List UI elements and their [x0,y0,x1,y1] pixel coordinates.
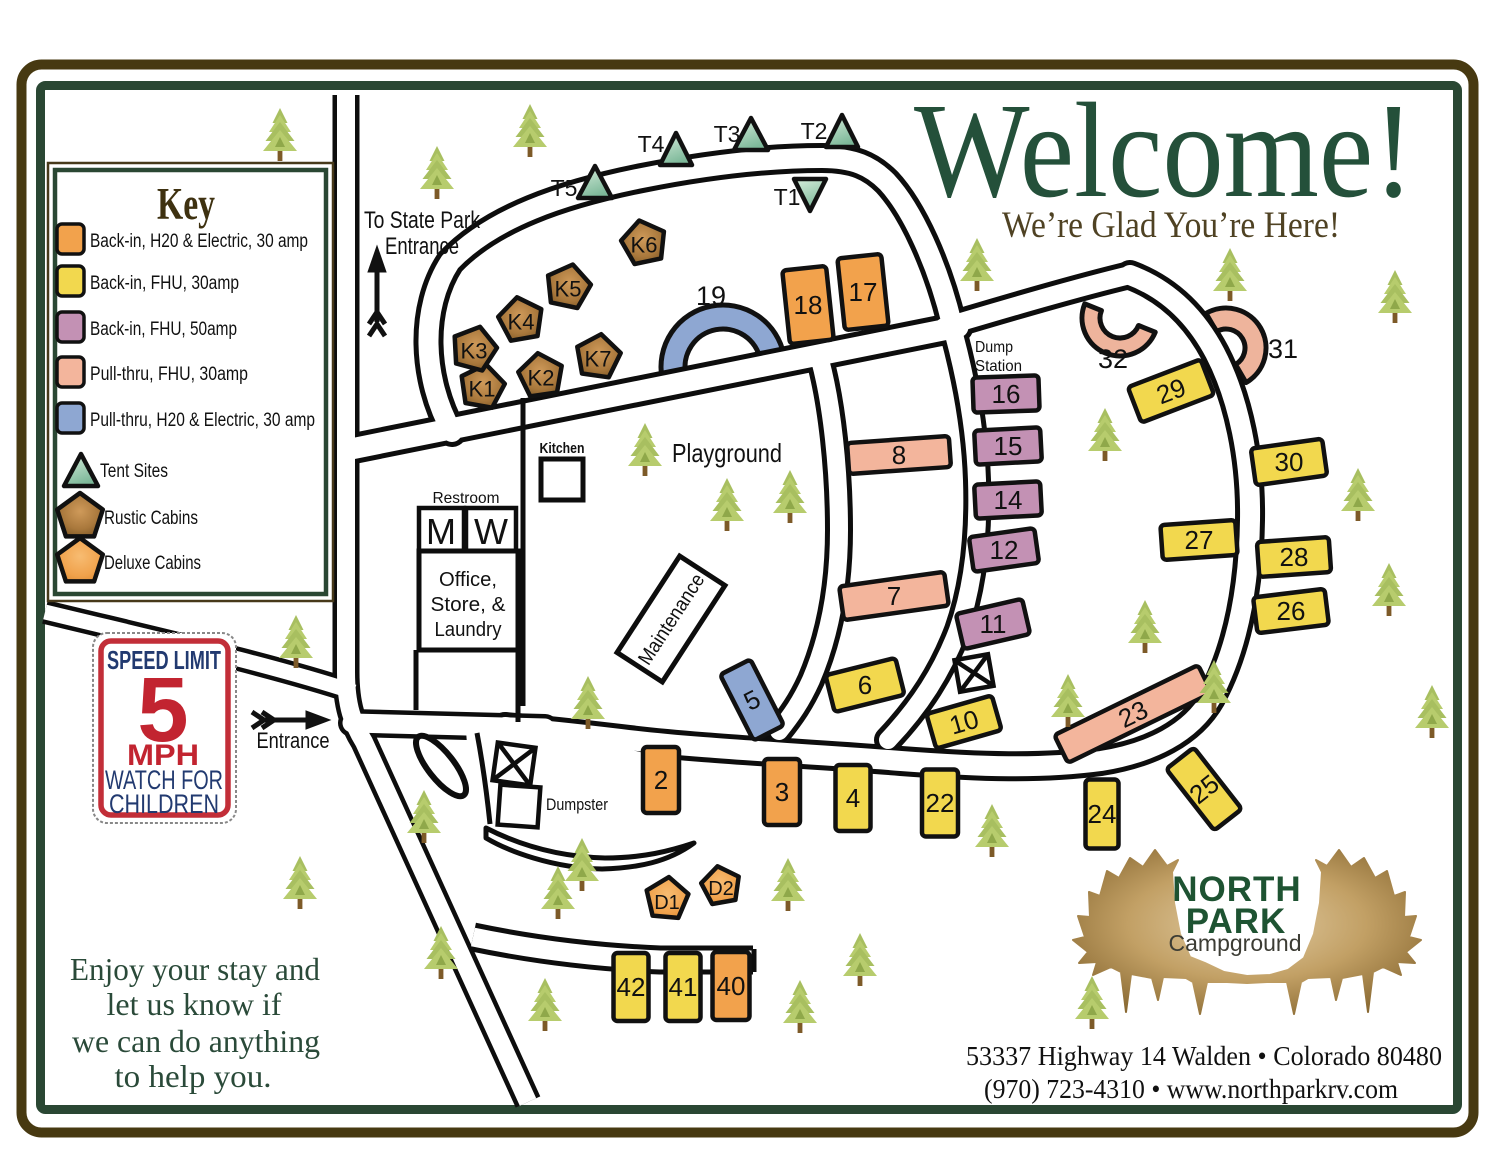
svg-text:Kitchen: Kitchen [540,440,585,457]
svg-text:30: 30 [1275,447,1304,477]
svg-text:15: 15 [994,431,1023,461]
svg-text:14: 14 [994,485,1023,515]
svg-text:6: 6 [858,670,872,700]
svg-text:Office,: Office, [439,569,497,591]
svg-text:Laundry: Laundry [435,619,502,641]
svg-text:4: 4 [846,783,860,813]
svg-text:T1: T1 [774,184,801,210]
svg-text:T2: T2 [801,118,828,144]
svg-text:7: 7 [887,581,901,611]
svg-text:K5: K5 [555,277,582,302]
svg-text:Tent Sites: Tent Sites [100,461,168,482]
svg-text:28: 28 [1280,542,1309,572]
svg-text:Restroom: Restroom [433,490,500,507]
svg-text:T5: T5 [551,175,578,201]
svg-text:26: 26 [1277,596,1306,626]
svg-text:Dump: Dump [975,339,1013,356]
svg-text:3: 3 [775,777,789,807]
svg-text:41: 41 [669,972,698,1002]
svg-text:D2: D2 [708,878,734,900]
svg-text:K3: K3 [461,339,488,364]
svg-text:let us know if: let us know if [107,986,282,1022]
svg-text:22: 22 [926,788,955,818]
svg-text:53337 Highway 14 Walden • Colo: 53337 Highway 14 Walden • Colorado 80480 [966,1041,1442,1071]
svg-text:17: 17 [849,277,878,307]
svg-text:Rustic Cabins: Rustic Cabins [104,508,198,529]
svg-text:Entrance: Entrance [385,233,459,260]
svg-text:Campground: Campground [1169,930,1302,956]
svg-text:K6: K6 [631,233,658,258]
svg-text:Key: Key [157,179,215,229]
svg-text:Enjoy your stay and: Enjoy your stay and [70,951,320,987]
svg-text:T4: T4 [638,131,665,157]
svg-text:24: 24 [1088,799,1117,829]
svg-text:K7: K7 [585,347,612,372]
svg-text:Welcome!: Welcome! [914,76,1414,226]
svg-text:18: 18 [794,290,823,320]
svg-text:2: 2 [654,765,668,795]
svg-text:W: W [474,511,508,552]
svg-text:42: 42 [617,972,646,1002]
svg-text:12: 12 [990,535,1019,565]
svg-text:Pull-thru, H20 & Electric, 30: Pull-thru, H20 & Electric, 30 amp [90,410,315,431]
svg-text:Back-in, FHU, 50amp: Back-in, FHU, 50amp [90,319,237,340]
svg-text:Back-in, H20 & Electric, 30 am: Back-in, H20 & Electric, 30 amp [90,231,308,252]
svg-text:Deluxe Cabins: Deluxe Cabins [104,553,201,574]
svg-text:To State Park: To State Park [364,207,481,234]
svg-text:Pull-thru, FHU, 30amp: Pull-thru, FHU, 30amp [90,364,248,385]
svg-text:K2: K2 [528,366,555,391]
svg-text:27: 27 [1185,525,1214,555]
svg-text:K4: K4 [508,310,535,335]
svg-text:to help you.: to help you. [115,1058,272,1094]
svg-text:Back-in, FHU, 30amp: Back-in, FHU, 30amp [90,273,239,294]
svg-text:Store, &: Store, & [431,594,507,616]
svg-text:11: 11 [980,609,1007,639]
svg-text:T3: T3 [714,121,741,147]
svg-text:Dumpster: Dumpster [546,795,608,814]
svg-text:K1: K1 [469,377,496,402]
svg-text:M: M [426,511,456,552]
svg-text:Playground: Playground [672,438,782,468]
svg-text:D1: D1 [654,892,680,914]
svg-text:Station: Station [975,358,1022,375]
svg-text:8: 8 [892,440,906,470]
svg-text:CHILDREN: CHILDREN [109,789,219,819]
svg-text:We’re Glad You’re Here!: We’re Glad You’re Here! [1002,205,1340,246]
svg-text:19: 19 [696,281,726,311]
svg-text:Entrance: Entrance [257,728,330,753]
svg-text:16: 16 [992,379,1021,409]
svg-text:40: 40 [717,971,746,1001]
svg-text:(970) 723-4310 • www.northpark: (970) 723-4310 • www.northparkrv.com [984,1074,1398,1104]
svg-text:we can do anything: we can do anything [72,1023,320,1059]
svg-text:31: 31 [1268,334,1298,364]
svg-text:32: 32 [1098,344,1128,374]
